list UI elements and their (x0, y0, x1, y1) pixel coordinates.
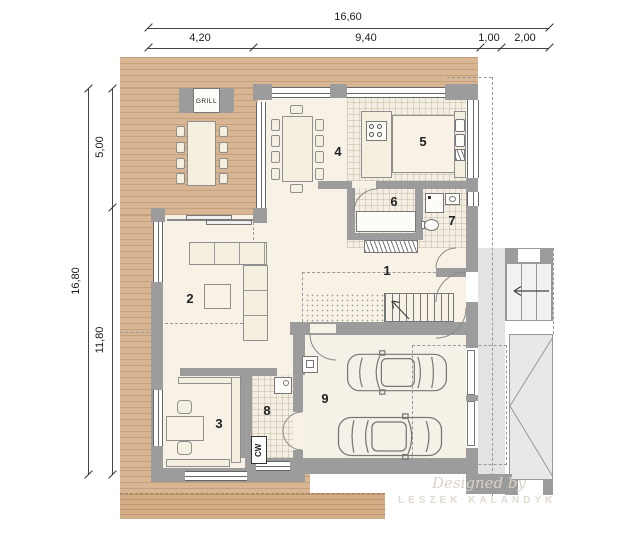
grill-side-left (179, 88, 193, 113)
outdoor-chair (176, 158, 185, 169)
bath-sink-bowl (449, 196, 456, 202)
office-shelf-bottom (166, 459, 230, 467)
car-icon (345, 349, 449, 396)
closet (356, 211, 416, 232)
landing-pier-left (505, 248, 518, 263)
entrance-threshold (466, 272, 478, 302)
wall-room6-left (347, 188, 355, 233)
window-office-left (153, 390, 163, 446)
room-label-3: 3 (211, 416, 227, 431)
wall-left-living (151, 282, 163, 375)
desk (166, 416, 204, 441)
car-icon (333, 413, 447, 460)
burner (369, 124, 374, 129)
dining-chair (315, 135, 324, 147)
dim-line-left-segments (112, 89, 114, 475)
room-label-9: 9 (317, 391, 333, 406)
dim-total-width: 16,60 (298, 11, 398, 23)
window-living-left (153, 222, 163, 282)
dashed-roof-top (447, 77, 492, 79)
shower-drain (428, 196, 431, 199)
outdoor-chair (176, 173, 185, 184)
room-label-8: 8 (259, 403, 275, 418)
dining-table (282, 116, 313, 182)
dim-seg-940: 9,40 (336, 32, 396, 44)
watermark-designed-by: Designed by (432, 474, 526, 492)
window-top-1 (272, 87, 330, 98)
dashed-living-h (165, 323, 253, 325)
dim-line-left-total (88, 89, 90, 475)
outdoor-chair (176, 142, 185, 153)
dashed-roof-right2 (553, 248, 555, 334)
dashed-roof-right (492, 77, 494, 496)
wall-utility-right-lower (293, 450, 303, 458)
watermark-author: LESZEK KALANDYK (398, 495, 556, 506)
room-label-5: 5 (415, 134, 431, 149)
staircase (384, 293, 454, 322)
burner (377, 124, 382, 129)
utility-sink-bowl (283, 380, 289, 386)
room-label-1: 1 (379, 263, 395, 278)
grill-side-right (220, 88, 234, 113)
dim-line-top-segments (148, 48, 549, 50)
dim-seg-200: 2,00 (502, 32, 548, 44)
deck-top-band (120, 57, 478, 88)
dining-chair (290, 184, 303, 193)
wall-right-mid (466, 178, 478, 248)
radiator (364, 240, 418, 253)
office-cabinet-right (231, 377, 241, 463)
wall-right-entry-upper (466, 248, 478, 272)
dashed-hall-v (302, 272, 304, 322)
dining-chair (271, 119, 280, 131)
ramp-pier-right (543, 480, 553, 495)
burner (369, 132, 374, 137)
room-label-4: 4 (330, 144, 346, 159)
landing-pier-right (540, 248, 553, 263)
utility-sink (274, 377, 292, 394)
office-chair (177, 441, 192, 455)
dining-chair (290, 105, 303, 114)
outdoor-chair (219, 142, 228, 153)
sofa-vertical (243, 265, 268, 341)
window-dining-left (256, 102, 266, 208)
floor-plan: 16,60 4,20 9,40 1,00 2,00 16,80 5,00 11,… (0, 0, 638, 556)
dining-chair (271, 135, 280, 147)
wall-utility-right-upper (293, 375, 303, 412)
outdoor-chair (219, 158, 228, 169)
sink-basin (455, 119, 465, 132)
dishwasher (455, 149, 465, 161)
dining-chair (271, 151, 280, 163)
wall-living-office-divider (180, 368, 277, 376)
stair-void-dotted (305, 293, 384, 322)
entry-steps (505, 263, 553, 321)
wall-pillar (253, 208, 267, 223)
deck-bottom-step (120, 493, 385, 519)
coffee-table (204, 284, 231, 309)
outdoor-chair (219, 173, 228, 184)
sofa-horizontal (189, 242, 267, 265)
dining-chair (315, 168, 324, 180)
wall-pillar (253, 84, 272, 100)
dim-seg-420: 4,20 (170, 32, 230, 44)
dining-chair (271, 168, 280, 180)
window-top-2 (347, 87, 445, 98)
dim-line-top-total (148, 28, 549, 30)
dim-total-height: 16,80 (70, 261, 82, 301)
toilet (424, 219, 439, 231)
outdoor-table (187, 121, 216, 186)
grill-unit: GRILL (193, 88, 220, 113)
wall-room6-bottom (347, 233, 417, 240)
room-label-2: 2 (182, 291, 198, 306)
outdoor-chair (176, 126, 185, 137)
room-label-7: 7 (444, 213, 460, 228)
window-kitchen-right (467, 100, 479, 178)
dining-chair (315, 151, 324, 163)
window-office-bottom (185, 471, 247, 481)
window-bath-right (467, 192, 479, 206)
toilet-tank (421, 221, 425, 229)
ramp (509, 334, 553, 480)
outdoor-chair (219, 126, 228, 137)
dim-seg-1180: 11,80 (94, 320, 106, 360)
utility-cw-label: CW (251, 436, 267, 464)
sink-basin (455, 134, 465, 147)
burner (377, 132, 382, 137)
garage-sink-bowl (306, 360, 314, 368)
wall-corner-ne (445, 84, 478, 100)
office-chair (177, 400, 192, 414)
room-label-6: 6 (386, 194, 402, 209)
door-gap-garage (310, 324, 336, 333)
dining-chair (315, 119, 324, 131)
dim-seg-500: 5,00 (94, 127, 106, 167)
wall-right-entry-lower (466, 302, 478, 348)
wall-pillar (330, 84, 347, 98)
wall-pillar (151, 208, 165, 222)
sliding-door-panel-2 (206, 220, 252, 225)
